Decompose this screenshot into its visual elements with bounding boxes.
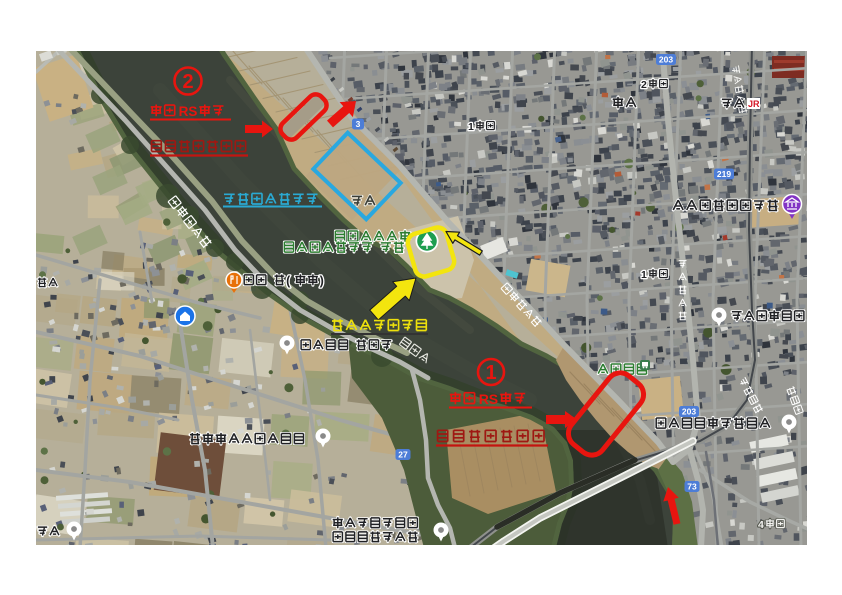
svg-text:JR: JR	[748, 99, 760, 109]
svg-text:4: 4	[758, 519, 764, 531]
svg-text:RS: RS	[479, 391, 498, 407]
svg-text:73: 73	[687, 482, 697, 492]
svg-text:203: 203	[682, 407, 696, 417]
svg-text:1: 1	[468, 121, 474, 133]
svg-text:1: 1	[641, 269, 647, 281]
svg-text:203: 203	[659, 55, 673, 65]
svg-text:): )	[320, 274, 324, 288]
svg-text:219: 219	[717, 169, 731, 179]
svg-text:27: 27	[398, 450, 408, 460]
svg-text:2: 2	[182, 71, 193, 93]
svg-text:2: 2	[641, 79, 647, 91]
svg-text:3: 3	[356, 119, 361, 129]
svg-text:1: 1	[485, 362, 496, 384]
svg-text:RS: RS	[179, 104, 198, 119]
